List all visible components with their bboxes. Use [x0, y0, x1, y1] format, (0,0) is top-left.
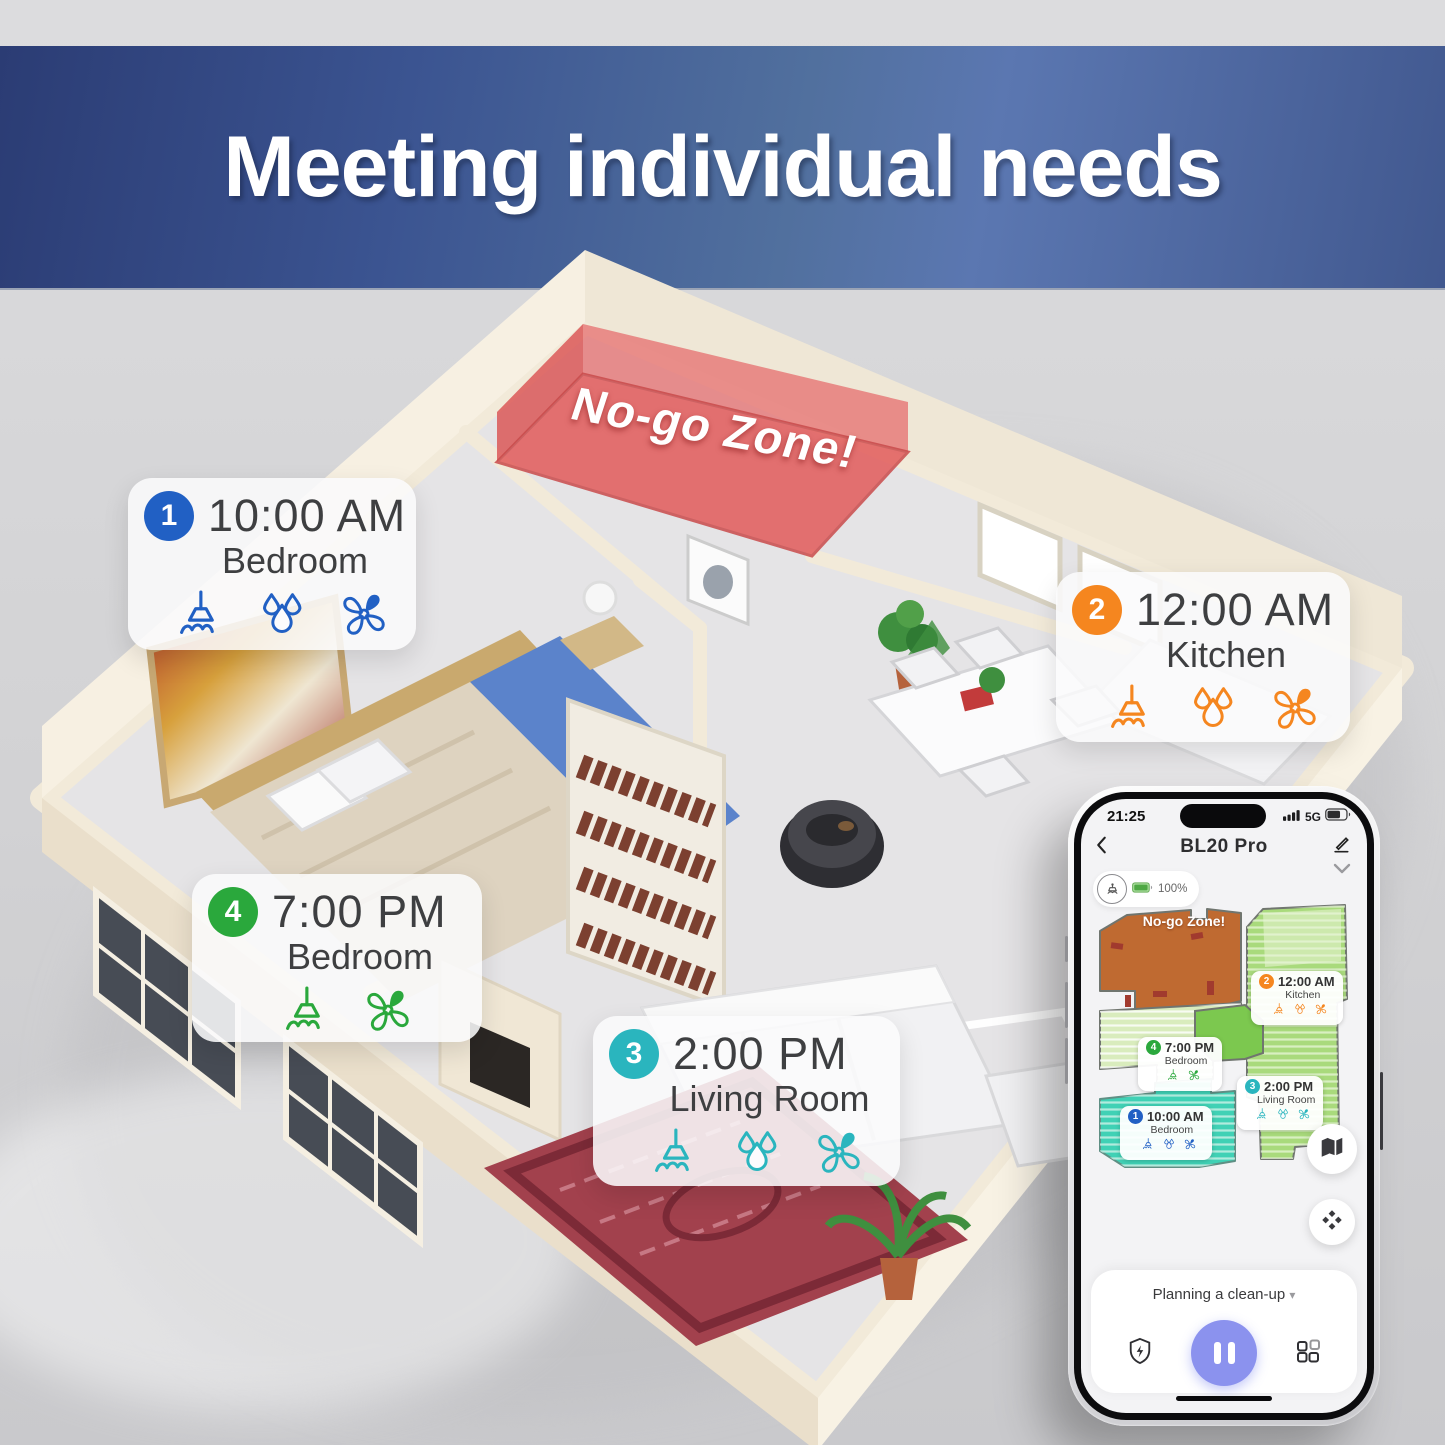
cellular-bars-icon	[1283, 808, 1301, 826]
chip-icons	[1146, 1068, 1214, 1087]
sweep-icon	[1103, 680, 1159, 741]
chip-number-badge: 2	[1259, 974, 1274, 989]
cleaning-map[interactable]	[1095, 903, 1353, 1221]
schedule-room: Bedroom	[128, 540, 416, 582]
bookshelf	[568, 700, 724, 1008]
sweep-icon	[1255, 1107, 1269, 1126]
chip-number-badge: 4	[1146, 1040, 1161, 1055]
fan-icon	[1267, 680, 1323, 741]
recharge-button[interactable]	[1127, 1337, 1153, 1370]
mop-icon	[254, 586, 310, 647]
chip-time: 2:00 PM	[1264, 1079, 1313, 1094]
sweep-icon	[1166, 1068, 1180, 1087]
map-no-go-label: No-go Zone!	[1109, 913, 1259, 929]
chip-number-badge: 1	[1128, 1109, 1143, 1124]
app-screen: 21:25 5G BL20 Pro 100%	[1081, 799, 1367, 1413]
phone-mockup: 21:25 5G BL20 Pro 100%	[1068, 786, 1380, 1426]
chip-icons	[1259, 1002, 1335, 1021]
fan-icon	[360, 982, 416, 1043]
schedule-card-4: 4 7:00 PM Bedroom	[192, 874, 482, 1042]
battery-icon	[1325, 808, 1351, 826]
map-select-button[interactable]	[1307, 1124, 1357, 1174]
schedule-number-badge: 3	[609, 1029, 659, 1079]
sweep-icon	[278, 982, 334, 1043]
chip-time: 7:00 PM	[1165, 1040, 1214, 1055]
chip-icons	[1128, 1137, 1204, 1156]
control-panel: Planning a clean-up ▾	[1091, 1270, 1357, 1393]
battery-icon	[1132, 880, 1153, 898]
mode-label: Planning a clean-up	[1153, 1286, 1286, 1303]
status-bar-clock: 21:25	[1107, 808, 1145, 825]
chip-room: Bedroom	[1146, 1055, 1214, 1067]
fan-icon	[1314, 1002, 1328, 1021]
fan-icon	[336, 586, 392, 647]
schedule-card-3: 3 2:00 PM Living Room	[593, 1016, 900, 1186]
chip-room: Bedroom	[1128, 1124, 1204, 1136]
schedule-number-badge: 1	[144, 491, 194, 541]
fan-icon	[1297, 1107, 1311, 1126]
schedule-room: Kitchen	[1056, 634, 1350, 676]
chip-room: Kitchen	[1259, 989, 1335, 1001]
chevron-down-icon: ▾	[1289, 1288, 1295, 1302]
fan-icon	[811, 1124, 867, 1185]
schedule-room: Living Room	[593, 1078, 900, 1120]
mute-switch	[1065, 936, 1068, 962]
diamond-grid-icon	[1321, 1209, 1343, 1236]
edit-icon[interactable]	[1331, 835, 1351, 860]
battery-percent: 100%	[1158, 883, 1187, 895]
schedule-number-badge: 2	[1072, 585, 1122, 635]
sweep-icon	[1141, 1137, 1155, 1156]
volume-down-button	[1065, 1038, 1068, 1084]
map-chip-bedroom-morning: 110:00 AM Bedroom	[1120, 1106, 1212, 1160]
map-chip-bedroom-evening: 47:00 PM Bedroom	[1138, 1037, 1222, 1091]
cleaning-mode-icons	[1056, 680, 1350, 741]
home-indicator[interactable]	[1176, 1396, 1272, 1401]
schedule-card-1: 1 10:00 AM Bedroom	[128, 478, 416, 650]
schedule-time: 10:00 AM	[208, 490, 406, 542]
chevron-down-icon[interactable]	[1333, 861, 1351, 879]
schedule-room: Bedroom	[192, 936, 482, 978]
chip-room: Living Room	[1245, 1094, 1315, 1106]
sweep-icon	[172, 586, 228, 647]
chip-time: 12:00 AM	[1278, 974, 1335, 989]
chip-number-badge: 3	[1245, 1079, 1260, 1094]
schedule-time: 12:00 AM	[1136, 584, 1334, 636]
mop-icon	[1293, 1002, 1307, 1021]
schedule-time: 2:00 PM	[673, 1028, 848, 1080]
network-type: 5G	[1305, 810, 1321, 824]
device-name-title: BL20 Pro	[1081, 836, 1367, 858]
pause-icon	[1214, 1342, 1221, 1364]
volume-up-button	[1065, 982, 1068, 1028]
room-clean-button[interactable]	[1295, 1338, 1321, 1369]
pause-button[interactable]	[1191, 1320, 1257, 1386]
robot-status-pill[interactable]: 100%	[1093, 871, 1199, 907]
cleaning-mode-icons	[192, 982, 482, 1043]
dynamic-island	[1180, 804, 1266, 828]
schedule-card-2: 2 12:00 AM Kitchen	[1056, 572, 1350, 742]
map-chip-kitchen: 212:00 AM Kitchen	[1251, 971, 1343, 1025]
schedule-number-badge: 4	[208, 887, 258, 937]
robot-vacuum-icon	[1097, 874, 1127, 904]
map-icon	[1320, 1136, 1344, 1162]
split-zone-button[interactable]	[1309, 1199, 1355, 1245]
pause-icon	[1228, 1342, 1235, 1364]
schedule-time: 7:00 PM	[272, 886, 447, 938]
power-button	[1380, 1072, 1383, 1150]
sweep-icon	[1272, 1002, 1286, 1021]
cleaning-mode-icons	[128, 586, 416, 647]
sweep-icon	[647, 1124, 703, 1185]
fan-icon	[1187, 1068, 1201, 1087]
page: Meeting individual needs	[0, 0, 1445, 1445]
fan-icon	[1183, 1137, 1197, 1156]
mop-icon	[1276, 1107, 1290, 1126]
mode-selector[interactable]: Planning a clean-up ▾	[1091, 1286, 1357, 1303]
chip-icons	[1245, 1107, 1315, 1126]
mop-icon	[1162, 1137, 1176, 1156]
chip-time: 10:00 AM	[1147, 1109, 1204, 1124]
cleaning-mode-icons	[593, 1124, 900, 1185]
mop-icon	[1185, 680, 1241, 741]
status-bar-right: 5G	[1283, 808, 1351, 826]
map-chip-living-room: 32:00 PM Living Room	[1237, 1076, 1323, 1130]
mop-icon	[729, 1124, 785, 1185]
